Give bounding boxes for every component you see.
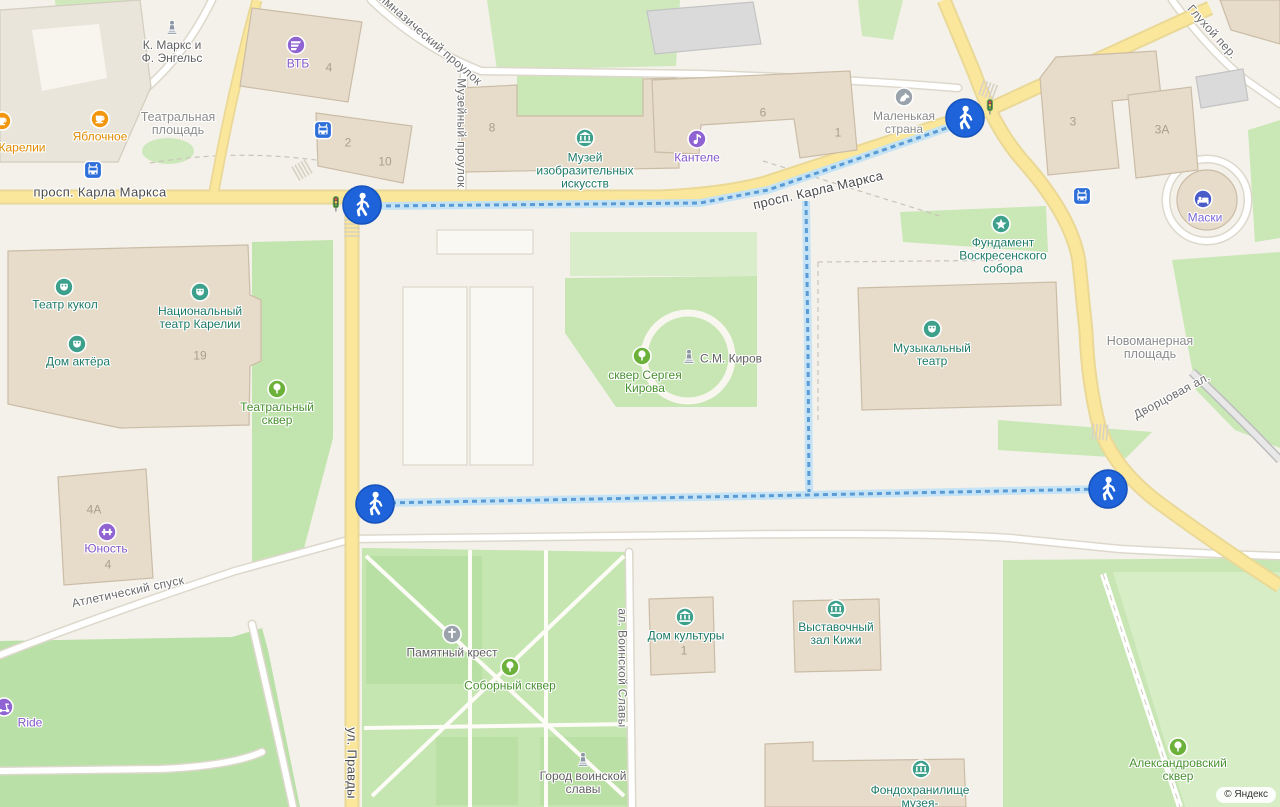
- label-line: Театр кукол: [32, 299, 97, 312]
- aleksandrovsky-skver-label[interactable]: Александровскийсквер: [1129, 757, 1227, 783]
- malenkaya-strana-icon[interactable]: [894, 87, 914, 107]
- kantele-icon[interactable]: [687, 129, 707, 149]
- karelii-icon[interactable]: [0, 111, 12, 131]
- dom-aktyora-icon[interactable]: [67, 334, 87, 354]
- teatr-kukol-icon[interactable]: [54, 277, 74, 297]
- building-number: 6: [760, 107, 767, 120]
- area-label-novomanernaya-ploshchad: Новоманернаяплощадь: [1107, 335, 1193, 361]
- natsionalny-teatr-karelii-label[interactable]: Национальныйтеатр Карелии: [158, 305, 242, 331]
- label-line: сквер: [240, 414, 314, 427]
- building-number: 4А: [87, 504, 102, 517]
- street-label-muzeyny-proulok: Музейный проулок: [455, 78, 468, 187]
- label-line: Соборный сквер: [464, 680, 556, 693]
- attribution-text: © Яндекс: [1224, 789, 1268, 800]
- building-number: 19: [193, 350, 206, 363]
- kirov-monument-label[interactable]: С.М. Киров: [700, 353, 762, 366]
- maski-label[interactable]: Маски: [1188, 212, 1223, 225]
- label-line: площадь: [141, 124, 216, 137]
- yunost-label[interactable]: Юность: [84, 543, 127, 556]
- dom-kultury-label[interactable]: Дом культуры: [648, 630, 725, 643]
- street-label-atletichesky-spusk: Атлетический спуск: [71, 574, 186, 610]
- street-label-gimnazichesky-proulok: Гимназический проулок: [372, 0, 485, 88]
- fundament-sobora-icon[interactable]: [991, 214, 1011, 234]
- malenkaya-strana-label[interactable]: Маленькаястрана: [873, 110, 935, 136]
- street-label-prosp-karla-marksa-w: просп. Карла Маркса: [34, 186, 167, 199]
- label-line: ВТБ: [287, 58, 309, 71]
- transport-stop-icon[interactable]: [84, 161, 103, 180]
- label-line: Памятный крест: [407, 647, 498, 660]
- building-number: 4: [105, 559, 112, 572]
- karl-marx-engels-monument-icon[interactable]: [164, 19, 180, 36]
- dom-aktyora-label[interactable]: Дом актёра: [46, 356, 110, 369]
- building-number: 2: [345, 137, 352, 150]
- pedestrian-route-marker[interactable]: [342, 185, 382, 225]
- label-line: искусств: [536, 178, 633, 191]
- teatralny-skver-icon[interactable]: [267, 379, 287, 399]
- building-number: 4: [326, 62, 333, 75]
- soborny-skver-label[interactable]: Соборный сквер: [464, 680, 556, 693]
- muzey-izo-icon[interactable]: [575, 128, 595, 148]
- ride-label[interactable]: Ride: [18, 717, 43, 730]
- pedestrian-route-marker[interactable]: [355, 484, 395, 524]
- building-number: 3А: [1155, 124, 1170, 137]
- label-line: Ф. Энгельс: [142, 52, 203, 65]
- label-line: Карелии: [0, 142, 46, 155]
- label-line: страна: [873, 123, 935, 136]
- label-line: площадь: [1107, 348, 1193, 361]
- label-line: Юность: [84, 543, 127, 556]
- pamyatny-krest-label[interactable]: Памятный крест: [407, 647, 498, 660]
- label-line: музея-: [871, 797, 970, 807]
- label-line: Яблочное: [73, 131, 128, 144]
- building-number: 1: [835, 127, 842, 140]
- skver-sergeya-kirova-label[interactable]: сквер СергеяКирова: [608, 369, 681, 395]
- muzykalny-teatr-icon[interactable]: [922, 319, 942, 339]
- map-overlay: просп. Карла Марксапросп. Карла Марксаул…: [0, 0, 1280, 807]
- area-label-teatralnaya-ploshchad: Театральнаяплощадь: [141, 111, 216, 137]
- vtb-icon[interactable]: [286, 35, 306, 55]
- vtb-label[interactable]: ВТБ: [287, 58, 309, 71]
- traffic-light-icon[interactable]: [985, 99, 996, 116]
- yablochnoe-icon[interactable]: [90, 109, 110, 129]
- vystavochny-zal-kizhi-icon[interactable]: [826, 599, 846, 619]
- building-number: 1: [681, 645, 688, 658]
- fondokhranilishche-muzeya-icon[interactable]: [911, 759, 931, 779]
- yunost-icon[interactable]: [97, 522, 117, 542]
- muzykalny-teatr-label[interactable]: Музыкальныйтеатр: [893, 342, 971, 368]
- street-label-ul-pravdy: ул. Правды: [346, 727, 359, 799]
- label-line: славы: [540, 783, 627, 796]
- gorod-voinskoy-slavy-label[interactable]: Город воинскойславы: [540, 770, 627, 796]
- pamyatny-krest-icon[interactable]: [442, 624, 462, 644]
- map-attribution[interactable]: © Яндекс: [1216, 787, 1276, 803]
- label-line: Кантеле: [674, 152, 720, 165]
- dom-kultury-icon[interactable]: [675, 607, 695, 627]
- label-line: театр: [893, 355, 971, 368]
- label-line: Маски: [1188, 212, 1223, 225]
- label-line: театр Карелии: [158, 318, 242, 331]
- maski-icon[interactable]: [1193, 189, 1213, 209]
- natsionalny-teatr-karelii-icon[interactable]: [190, 282, 210, 302]
- skver-sergeya-kirova-icon[interactable]: [632, 346, 652, 366]
- label-line: Кирова: [608, 382, 681, 395]
- karl-marx-engels-monument-label[interactable]: К. Маркс иФ. Энгельс: [142, 39, 203, 65]
- building-number: 8: [489, 122, 496, 135]
- label-line: собора: [959, 263, 1046, 276]
- fundament-sobora-label[interactable]: ФундаментВоскресенскогособора: [959, 237, 1046, 276]
- label-line: Ride: [18, 717, 43, 730]
- ride-icon[interactable]: [0, 697, 14, 717]
- building-number: 3: [1070, 116, 1077, 129]
- fondokhranilishche-muzeya-label[interactable]: Фондохранилищемузея-: [871, 784, 970, 807]
- label-line: Дом культуры: [648, 630, 725, 643]
- muzey-izo-label[interactable]: Музейизобразительныхискусств: [536, 152, 633, 191]
- gorod-voinskoy-slavy-icon[interactable]: [575, 751, 591, 768]
- pedestrian-route-marker[interactable]: [1088, 469, 1128, 509]
- karelii-label[interactable]: Карелии: [0, 142, 46, 155]
- transport-stop-icon[interactable]: [314, 121, 333, 140]
- street-label-dvortsovaya-al: Дворцовая ал.: [1132, 370, 1213, 421]
- street-label-al-voinskoy-slavy: ал. Воинской Славы: [616, 608, 629, 727]
- label-line: Дом актёра: [46, 356, 110, 369]
- label-line: зал Кижи: [798, 634, 874, 647]
- kantele-label[interactable]: Кантеле: [674, 152, 720, 165]
- street-label-glukhoy-per: Глухой пер.: [1184, 2, 1239, 61]
- map[interactable]: просп. Карла Марксапросп. Карла Марксаул…: [0, 0, 1280, 807]
- kirov-monument-icon[interactable]: [681, 348, 697, 365]
- aleksandrovsky-skver-icon[interactable]: [1168, 737, 1188, 757]
- label-line: С.М. Киров: [700, 353, 762, 366]
- label-line: сквер: [1129, 770, 1227, 783]
- yablochnoe-label[interactable]: Яблочное: [73, 131, 128, 144]
- traffic-light-icon[interactable]: [331, 196, 342, 213]
- soborny-skver-icon[interactable]: [500, 657, 520, 677]
- transport-stop-icon[interactable]: [1073, 187, 1092, 206]
- pedestrian-route-marker[interactable]: [945, 98, 985, 138]
- street-label-prosp-karla-marksa-e: просп. Карла Маркса: [752, 169, 885, 212]
- teatr-kukol-label[interactable]: Театр кукол: [32, 299, 97, 312]
- teatralny-skver-label[interactable]: Театральныйсквер: [240, 401, 314, 427]
- vystavochny-zal-kizhi-label[interactable]: Выставочныйзал Кижи: [798, 621, 874, 647]
- building-number: 10: [378, 156, 391, 169]
